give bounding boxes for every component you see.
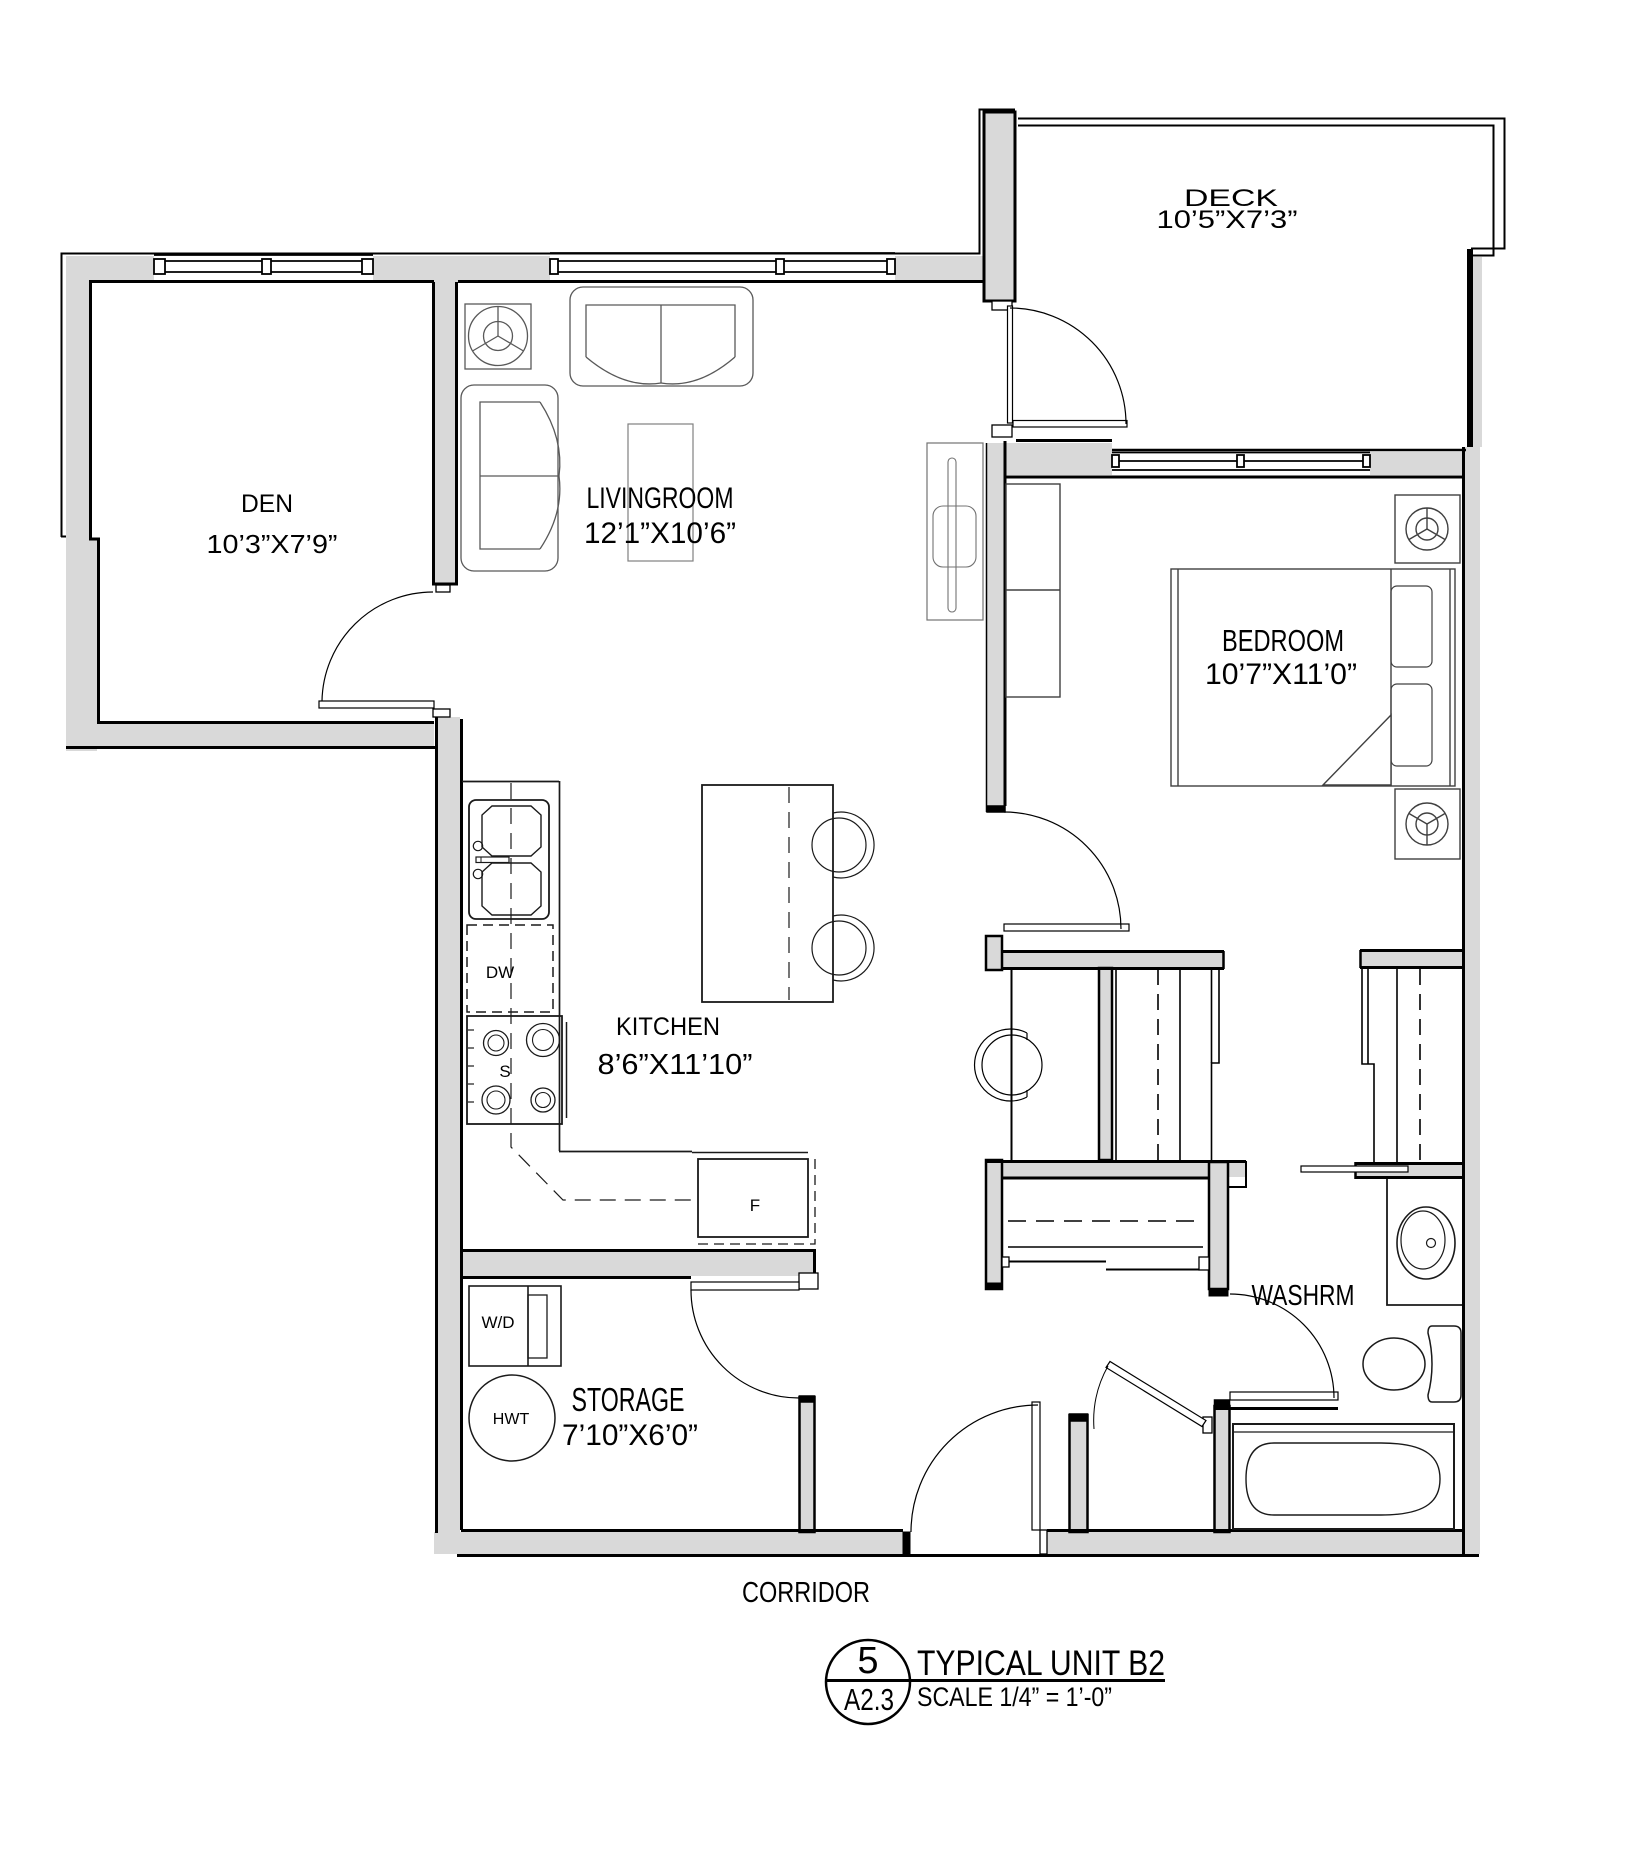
svg-text:S: S xyxy=(499,1062,510,1081)
svg-text:BEDROOM: BEDROOM xyxy=(1222,623,1344,658)
svg-text:F: F xyxy=(750,1196,760,1215)
svg-text:SCALE 1/4” = 1’-0”: SCALE 1/4” = 1’-0” xyxy=(917,1682,1112,1712)
svg-text:CORRIDOR: CORRIDOR xyxy=(742,1577,870,1609)
svg-text:KITCHEN: KITCHEN xyxy=(616,1013,720,1041)
svg-text:10’3”X7’9”: 10’3”X7’9” xyxy=(207,529,338,559)
svg-text:12’1”X10’6”: 12’1”X10’6” xyxy=(584,517,736,550)
svg-text:LIVINGROOM: LIVINGROOM xyxy=(587,482,734,515)
svg-text:10’7”X11’0”: 10’7”X11’0” xyxy=(1205,658,1357,691)
svg-text:WASHRM: WASHRM xyxy=(1252,1280,1355,1312)
svg-text:10’5”X7’3”: 10’5”X7’3” xyxy=(1157,206,1298,234)
svg-text:HWT: HWT xyxy=(493,1411,530,1428)
svg-text:STORAGE: STORAGE xyxy=(572,1381,685,1418)
svg-text:DW: DW xyxy=(486,963,514,982)
svg-text:5: 5 xyxy=(857,1640,878,1682)
svg-text:DEN: DEN xyxy=(241,490,293,518)
svg-text:A2.3: A2.3 xyxy=(844,1682,894,1717)
svg-text:8’6”X11’10”: 8’6”X11’10” xyxy=(598,1049,753,1081)
svg-text:W/D: W/D xyxy=(481,1313,514,1332)
svg-text:7’10”X6’0”: 7’10”X6’0” xyxy=(562,1419,698,1452)
svg-text:TYPICAL UNIT B2: TYPICAL UNIT B2 xyxy=(917,1644,1165,1683)
